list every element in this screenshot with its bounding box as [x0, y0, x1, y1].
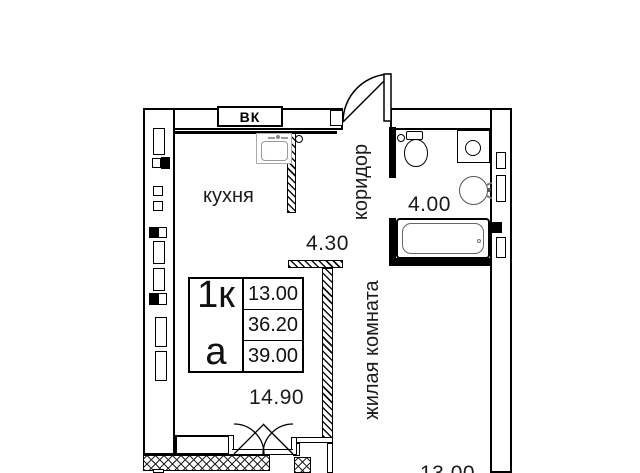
living-area-value: 13.00 [244, 279, 302, 310]
wall-detail [153, 186, 163, 196]
balcony-door-threshold [232, 449, 293, 455]
wall-detail [153, 241, 165, 264]
entrance-door-arc-icon [343, 74, 391, 122]
bathroom-area: 4.00 [408, 193, 451, 217]
toilet-hinge-dot [397, 134, 405, 142]
riser-shaft [496, 152, 506, 169]
toilet-icon [404, 139, 428, 167]
wall-detail [149, 293, 158, 305]
wall-detail [153, 128, 165, 155]
bathroom-bottom-wall [389, 258, 490, 266]
entrance-door-leaf-icon [343, 74, 391, 122]
kitchen-faucet [276, 135, 280, 139]
wall-detail [158, 227, 167, 238]
kitchen-living-partition [322, 268, 333, 438]
corridor-area: 4.30 [306, 232, 349, 256]
kitchen-label: кухня [203, 185, 254, 208]
bathtub-drain [477, 239, 481, 243]
wall-detail [155, 317, 167, 347]
sink-faucet [487, 188, 491, 192]
kitchen-faucet [268, 137, 275, 139]
living-room-label: жилая комната [361, 264, 385, 436]
bathroom-left-wall-upper [389, 127, 396, 178]
kitchen-bottom-wall [175, 435, 234, 455]
vent-shaft-box: ВК [217, 106, 283, 127]
vent-shaft-label: ВК [240, 109, 261, 125]
corridor-label: коридор [350, 127, 374, 237]
sink-icon [459, 176, 488, 205]
apartment-area-value: 36.20 [244, 310, 302, 341]
floor-plan: ВК [0, 0, 640, 473]
apartment-type-column: 1к а [190, 279, 244, 371]
kitchen-sink-icon [261, 141, 288, 161]
wall-detail [161, 157, 170, 169]
apartment-letter: а [205, 337, 226, 368]
kitchen-faucet [281, 137, 288, 139]
balcony-stub [153, 469, 164, 473]
riser-shaft [496, 175, 506, 202]
bathtub-icon [402, 223, 484, 254]
wall-detail [158, 293, 167, 305]
apartment-type: 1к [197, 280, 235, 311]
wall-detail [152, 158, 161, 168]
riser-shaft [496, 237, 506, 258]
door-hinge-dot [295, 135, 303, 143]
kitchen-area: 14.90 [249, 386, 304, 410]
wall-detail [153, 201, 163, 211]
wall-stub-vertical [327, 443, 333, 473]
apartment-info-box: 1к а 13.00 36.20 39.00 [188, 277, 304, 373]
wall-detail [149, 227, 158, 238]
balcony-parapet-corner [294, 457, 311, 473]
riser-shaft [489, 222, 502, 233]
apartment-areas-column: 13.00 36.20 39.00 [244, 279, 302, 371]
washing-machine-icon [465, 140, 481, 156]
wall-detail [153, 268, 165, 291]
wall-detail [155, 351, 167, 381]
door-jamb [330, 110, 343, 126]
total-area-value: 39.00 [244, 341, 302, 371]
partition-t-horizontal [288, 260, 343, 268]
living-room-area: 13.00 [420, 462, 475, 473]
